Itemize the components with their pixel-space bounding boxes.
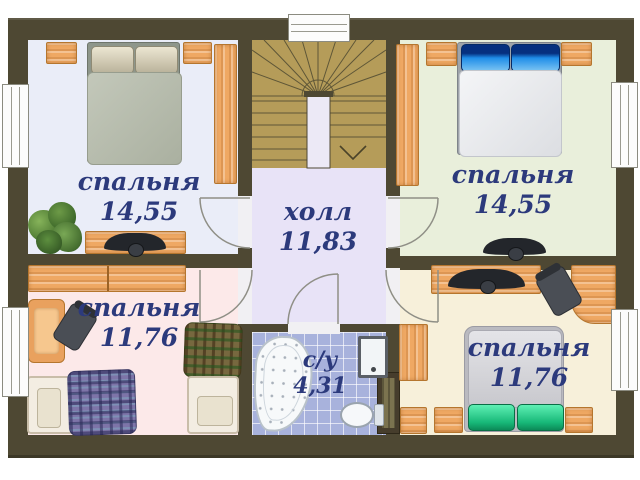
window-pane-line — [291, 31, 347, 32]
nightstand — [426, 42, 457, 66]
pillow — [37, 388, 61, 428]
room-name: спальня — [63, 167, 215, 197]
room-label-bedroom-tr: спальня 14,55 — [433, 160, 593, 220]
toilet-tank — [374, 404, 384, 426]
room-area: 14,55 — [433, 190, 593, 220]
window-pane-line — [19, 310, 20, 394]
pillow — [91, 46, 134, 74]
wardrobe — [214, 44, 237, 184]
single-bed — [187, 376, 239, 434]
tv-stand — [508, 247, 524, 261]
wardrobe — [399, 324, 428, 381]
bed-blanket — [459, 70, 562, 157]
room-area: 11,76 — [63, 323, 215, 353]
nightstand — [561, 42, 592, 66]
plaid-blanket — [67, 369, 137, 436]
window — [2, 84, 29, 168]
nightstand — [565, 407, 593, 433]
plant-foliage — [36, 230, 62, 254]
room-label-bathroom: с/у 4,31 — [268, 347, 372, 399]
room-label-hall: холл 11,83 — [253, 197, 383, 257]
tv — [448, 269, 525, 289]
room-name: спальня — [63, 293, 215, 323]
tv-stand — [128, 243, 144, 257]
window-pane-line — [291, 24, 347, 25]
window-pane-line — [628, 312, 629, 388]
nightstand — [183, 42, 212, 64]
room-label-bedroom-br: спальня 11,76 — [448, 333, 610, 393]
tv — [104, 233, 166, 251]
window-pane-line — [620, 85, 621, 165]
bed-blanket — [87, 72, 182, 165]
nightstand — [46, 42, 77, 64]
room-label-bedroom-bl: спальня 11,76 — [63, 293, 215, 353]
room-area: 11,83 — [253, 227, 383, 257]
window-pane-line — [620, 312, 621, 388]
pillow — [197, 396, 233, 426]
room-area: 11,76 — [448, 363, 610, 393]
pillow — [461, 44, 510, 72]
stairwell-floor — [252, 40, 386, 168]
window — [611, 309, 638, 391]
toilet — [340, 402, 374, 428]
window — [611, 82, 638, 168]
window-pane-line — [19, 87, 20, 165]
tv — [483, 238, 546, 255]
shelf-divider — [107, 266, 109, 291]
window-pane-line — [11, 87, 12, 165]
window-pane-line — [11, 310, 12, 394]
room-area: 4,31 — [268, 373, 372, 399]
cabinet — [400, 407, 427, 434]
wall-shelf — [28, 265, 186, 292]
pillow — [517, 404, 564, 431]
room-name: спальня — [433, 160, 593, 190]
room-label-bedroom-tl: спальня 14,55 — [63, 167, 215, 227]
room-area: 14,55 — [63, 197, 215, 227]
floor-plan: спальня 14,55 спальня 14,55 спальня 11,7… — [0, 0, 640, 480]
window — [2, 307, 29, 397]
window-pane-line — [628, 85, 629, 165]
nightstand — [434, 407, 463, 433]
window — [288, 14, 350, 42]
room-name: холл — [253, 197, 383, 227]
room-name: спальня — [448, 333, 610, 363]
wardrobe — [396, 44, 419, 186]
tv-stand — [480, 280, 496, 294]
pillow — [511, 44, 560, 72]
pillow — [468, 404, 515, 431]
pillow — [135, 46, 178, 74]
room-name: с/у — [268, 347, 372, 373]
